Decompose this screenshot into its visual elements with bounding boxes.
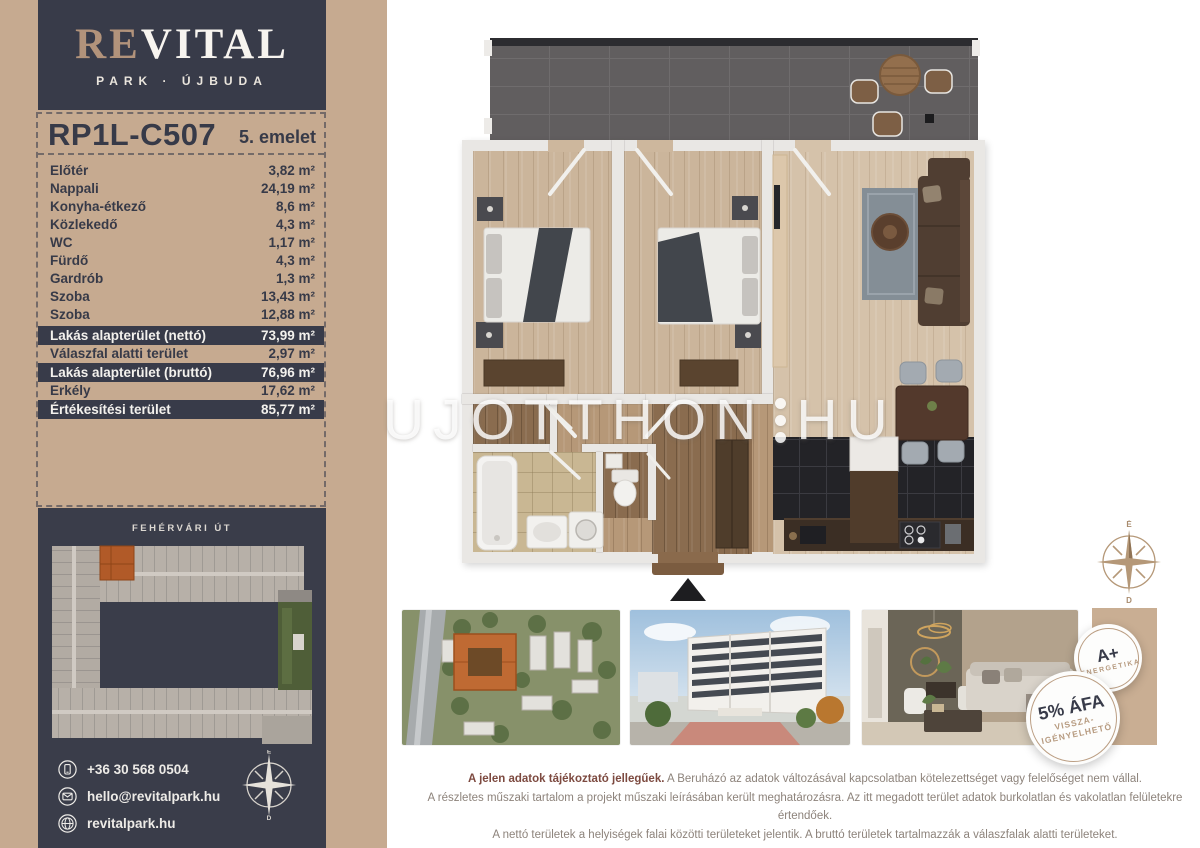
room-row: Szoba13,43 m²	[38, 287, 324, 305]
summary-row-net: Lakás alapterület (nettó)73,99 m²	[38, 326, 324, 345]
compass-s-label: D	[1126, 596, 1132, 604]
room-area: 4,3 m²	[276, 217, 315, 232]
room-row: Fürdő4,3 m²	[38, 251, 324, 269]
room-area: 4,3 m²	[276, 253, 315, 268]
watermark: UJOTTHON HU	[383, 390, 897, 450]
unit-header: RP1L-C507 5. emelet	[38, 114, 324, 155]
contact-email[interactable]: hello@revitalpark.hu	[58, 787, 220, 806]
site-compass-icon: É D	[238, 750, 300, 820]
energy-grade: A+	[1094, 643, 1119, 664]
room-name: Közlekedő	[50, 217, 118, 232]
brand-subtitle: PARK · ÚJBUDA	[96, 74, 268, 88]
entrance-step	[652, 563, 724, 575]
north-compass-icon: É D	[1094, 520, 1164, 604]
room-row: Közlekedő4,3 m²	[38, 215, 324, 233]
wall-wc-right	[648, 444, 656, 520]
render-building	[688, 628, 826, 714]
globe-icon	[58, 814, 77, 833]
disclaimer-line1: A Beruházó az adatok változásával kapcso…	[664, 773, 1142, 785]
vat-badge: 5% ÁFA VISSZA- IGÉNYELHETŐ	[1026, 671, 1120, 765]
brand-logo: REVITAL PARK · ÚJBUDA	[38, 0, 326, 110]
disclaimer-line3: A nettó területek a helyiségek falai köz…	[492, 829, 1117, 841]
unit-data-card: RP1L-C507 5. emelet Előtér3,82 m² Nappal…	[36, 112, 326, 507]
summary-row-balcony: Erkély17,62 m²	[38, 382, 324, 401]
room-row: Előtér3,82 m²	[38, 161, 324, 179]
contact-email-text: hello@revitalpark.hu	[87, 789, 220, 804]
contact-website[interactable]: revitalpark.hu	[58, 814, 220, 833]
area-summary: Lakás alapterület (nettó)73,99 m² Válasz…	[38, 326, 324, 419]
summary-label: Lakás alapterület (nettó)	[50, 328, 206, 343]
phone-icon	[58, 760, 77, 779]
highlighted-unit	[100, 546, 134, 580]
brand-name-re: RE	[75, 21, 141, 68]
bedroom-1-floor	[473, 151, 612, 394]
compass-s-label: D	[267, 815, 272, 820]
contact-website-text: revitalpark.hu	[87, 816, 176, 831]
photo-aerial-map	[402, 610, 620, 745]
wall-bedrooms	[612, 140, 624, 394]
brand-name-vital: VITAL	[141, 21, 289, 68]
room-area: 12,88 m²	[261, 307, 315, 322]
kitchen-counter	[784, 518, 974, 551]
room-area: 3,82 m²	[268, 163, 315, 178]
room-name: Szoba	[50, 307, 90, 322]
disclaimer-line2: A részletes műszaki tartalom a projekt m…	[428, 792, 1183, 823]
contact-phone[interactable]: +36 30 568 0504	[58, 760, 220, 779]
summary-label: Erkély	[50, 383, 91, 398]
room-row: Szoba12,88 m²	[38, 305, 324, 323]
room-name: Gardrób	[50, 271, 103, 286]
aerial-highlighted-complex	[454, 634, 516, 690]
summary-row-gross: Lakás alapterület (bruttó)76,96 m²	[38, 363, 324, 382]
summary-row-sales: Értékesítési terület85,77 m²	[38, 400, 324, 419]
wall-bedroom-living	[762, 140, 773, 394]
entrance-arrow	[670, 578, 706, 601]
street-label-top: FEHÉRVÁRI ÚT	[38, 523, 326, 534]
summary-value: 2,97 m²	[268, 346, 315, 361]
terrace-parapet	[490, 38, 978, 46]
wc-floor	[603, 452, 648, 518]
courtyard-connector	[278, 590, 312, 604]
brochure-page: REVITAL PARK · ÚJBUDA RP1L-C507 5. emele…	[0, 0, 1200, 848]
bedroom-2-floor	[624, 151, 762, 394]
contact-list: +36 30 568 0504 hello@revitalpark.hu rev…	[58, 760, 220, 841]
room-row: WC1,17 m²	[38, 233, 324, 251]
summary-value: 73,99 m²	[261, 328, 315, 343]
room-row: Konyha-étkező8,6 m²	[38, 197, 324, 215]
wall-bath-right	[596, 452, 603, 552]
compass-n-label: É	[1126, 520, 1132, 529]
bathroom-floor	[473, 452, 596, 552]
summary-label: Válaszfal alatti terület	[50, 346, 188, 361]
room-area: 1,17 m²	[268, 235, 315, 250]
courtyard-green	[278, 602, 312, 690]
compass-n-label: É	[267, 750, 272, 756]
room-area: 8,6 m²	[276, 199, 315, 214]
unit-code: RP1L-C507	[48, 120, 216, 149]
terrace	[490, 46, 978, 142]
disclaimer-intro: A jelen adatok tájékoztató jellegűek.	[468, 773, 664, 785]
room-row: Gardrób1,3 m²	[38, 269, 324, 287]
room-name: Fürdő	[50, 253, 88, 268]
summary-value: 76,96 m²	[261, 365, 315, 380]
room-name: WC	[50, 235, 73, 250]
photo-building-render	[630, 610, 850, 745]
watermark-text: UJOTTHON	[383, 387, 765, 453]
contact-phone-text: +36 30 568 0504	[87, 762, 189, 777]
summary-value: 17,62 m²	[261, 383, 315, 398]
room-name: Szoba	[50, 289, 90, 304]
room-area: 24,19 m²	[261, 181, 315, 196]
room-name: Nappali	[50, 181, 99, 196]
building-wings	[52, 546, 312, 744]
summary-row-partition: Válaszfal alatti terület2,97 m²	[38, 345, 324, 364]
room-name: Előtér	[50, 163, 88, 178]
brand-name: REVITAL	[75, 23, 289, 66]
room-row: Nappali24,19 m²	[38, 179, 324, 197]
room-name: Konyha-étkező	[50, 199, 146, 214]
watermark-suffix: HU	[796, 387, 896, 453]
unit-floor: 5. emelet	[239, 127, 316, 149]
site-map-panel: FEHÉRVÁRI ÚT BARÁZDA UTCA	[38, 508, 326, 848]
room-area: 13,43 m²	[261, 289, 315, 304]
summary-label: Lakás alapterület (bruttó)	[50, 365, 212, 380]
watermark-colon-dots	[775, 398, 786, 443]
summary-label: Értékesítési terület	[50, 402, 171, 417]
room-list: Előtér3,82 m² Nappali24,19 m² Konyha-étk…	[38, 155, 324, 323]
disclaimer: A jelen adatok tájékoztató jellegűek. A …	[415, 770, 1195, 845]
building-map	[46, 538, 318, 748]
room-area: 1,3 m²	[276, 271, 315, 286]
email-icon	[58, 787, 77, 806]
summary-value: 85,77 m²	[261, 402, 315, 417]
